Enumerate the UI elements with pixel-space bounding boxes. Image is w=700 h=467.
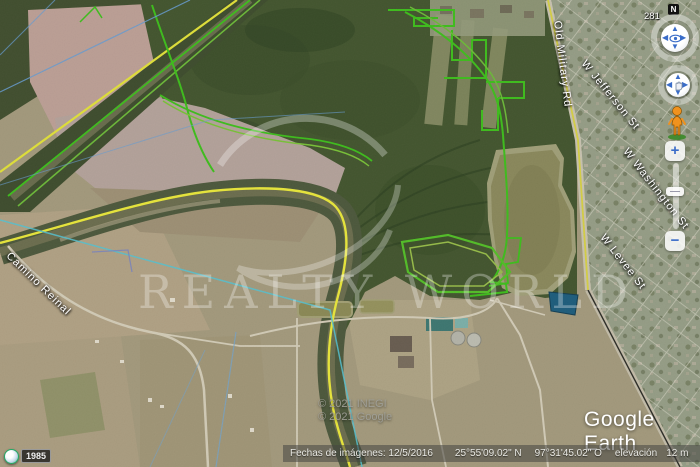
copyright-attribution: © 2021 INEGI © 2021 Google bbox=[318, 398, 392, 424]
pan-hand-icon[interactable] bbox=[673, 79, 684, 91]
look-down-arrow-icon[interactable]: ▼ bbox=[671, 43, 679, 51]
zoom-slider-track[interactable] bbox=[673, 163, 679, 229]
look-joystick[interactable]: ▲ ▼ ◀ ▶ bbox=[661, 24, 689, 52]
look-up-arrow-icon[interactable]: ▲ bbox=[671, 25, 679, 33]
satellite-imagery-map[interactable]: REALTY WORLD bbox=[0, 0, 700, 467]
elevation-value: 12 m bbox=[666, 448, 688, 459]
zoom-in-button[interactable]: + bbox=[665, 141, 685, 161]
status-bar: Fechas de imágenes: 12/5/2016 25°55'09.0… bbox=[283, 445, 700, 462]
eye-icon[interactable] bbox=[669, 34, 682, 43]
historical-imagery-clock-icon[interactable] bbox=[4, 449, 19, 464]
move-left-arrow-icon[interactable]: ◀ bbox=[666, 81, 672, 89]
google-earth-viewport: REALTY WORLD Old Military Rd W Jefferson… bbox=[0, 0, 700, 467]
imagery-year-badge[interactable]: 1985 bbox=[21, 449, 51, 463]
copyright-inegi: © 2021 INEGI bbox=[318, 398, 392, 411]
copyright-google: © 2021 Google bbox=[318, 411, 392, 424]
pegman-street-view-icon[interactable] bbox=[666, 105, 688, 141]
imagery-date-text: Fechas de imágenes: 12/5/2016 bbox=[290, 448, 433, 459]
look-left-arrow-icon[interactable]: ◀ bbox=[662, 34, 668, 42]
zoom-slider-handle[interactable] bbox=[666, 187, 684, 196]
imagery-grain bbox=[0, 0, 700, 467]
elevation-label: elevación bbox=[615, 448, 657, 459]
watermark-text: REALTY WORLD bbox=[138, 265, 637, 319]
latitude-value: 25°55'09.02" N bbox=[455, 448, 522, 459]
longitude-value: 97°31'45.02" O bbox=[535, 448, 602, 459]
zoom-out-button[interactable]: − bbox=[665, 231, 685, 251]
move-joystick[interactable]: ▲ ▼ ◀ ▶ bbox=[666, 73, 690, 97]
